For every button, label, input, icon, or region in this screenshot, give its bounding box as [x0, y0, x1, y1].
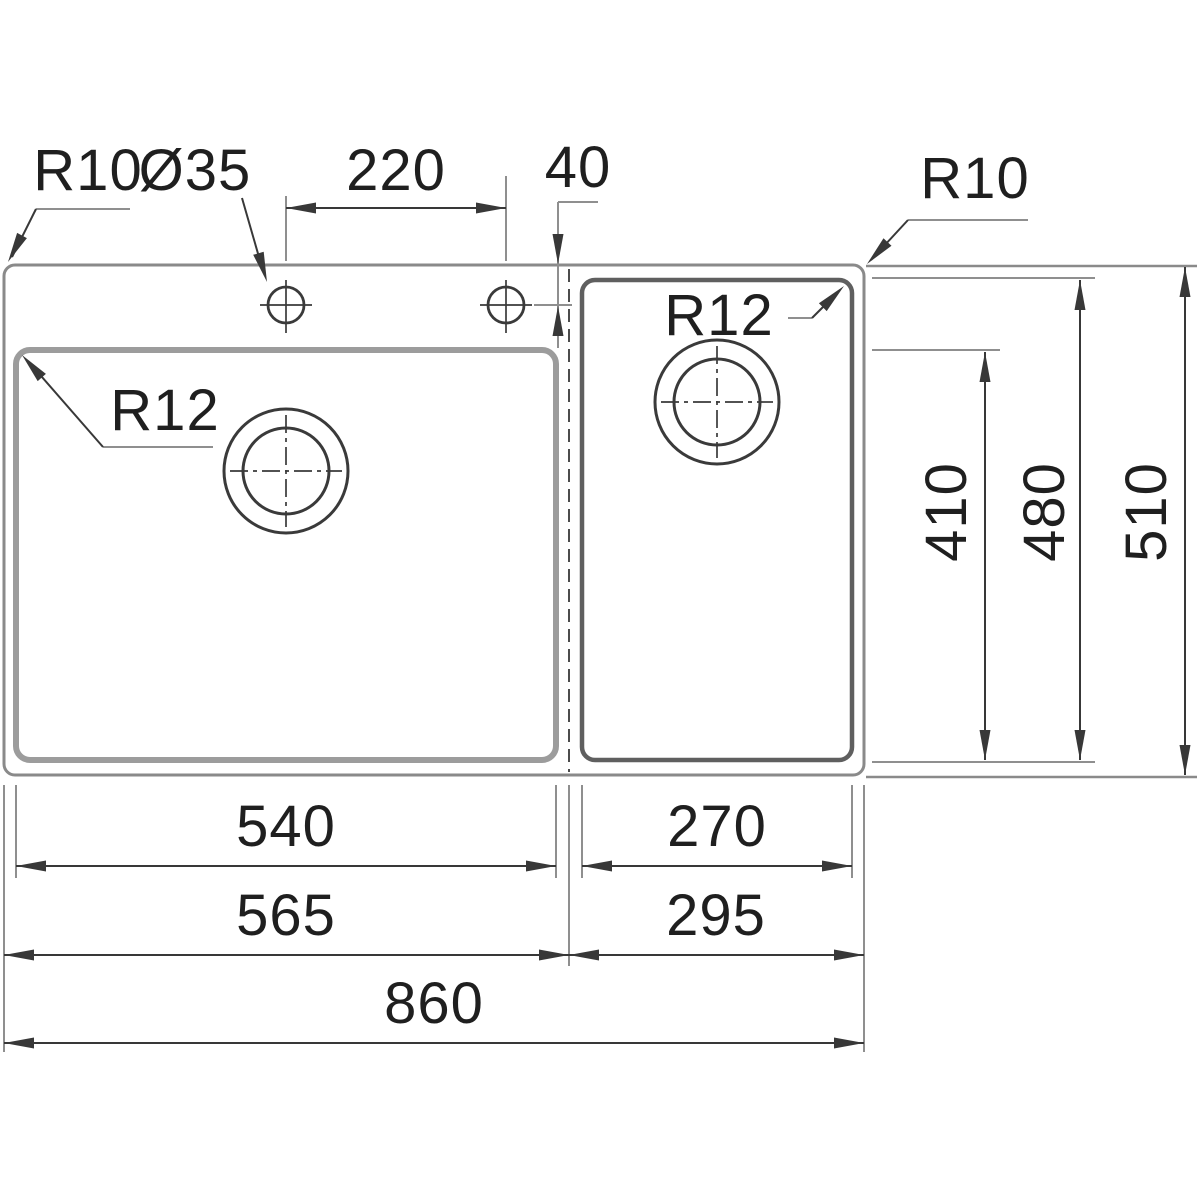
dim-text-565: 565 [236, 883, 336, 948]
arrowhead-510-top [1180, 267, 1191, 297]
main-bowl-outline [16, 350, 556, 760]
arrowhead-270-right [822, 861, 852, 872]
arrowhead-40-down [553, 234, 564, 264]
callout-r12-small-bowl: R12 [664, 283, 844, 348]
dim-text-510: 510 [1114, 462, 1179, 562]
dimension-tap-spacing-220: 220 [286, 138, 506, 261]
callout-tap-diameter-o35: Ø35 [139, 138, 267, 282]
callout-r10-top-right: R10 [867, 146, 1030, 264]
arrowhead-540-right [526, 861, 556, 872]
dimension-tap-offset-40: 40 [534, 135, 611, 348]
dim-text-860: 860 [384, 971, 484, 1036]
dimension-depth-410: 410 [872, 350, 1000, 760]
arrowhead-860-left [4, 1038, 34, 1049]
dim-text-40: 40 [545, 135, 612, 200]
arrowhead-r10-left [8, 233, 27, 262]
dim-text-220: 220 [346, 138, 446, 203]
arrowhead-295-right [834, 950, 864, 961]
arrowhead-o35 [253, 252, 267, 282]
arrowhead-480-top [1075, 280, 1086, 310]
callout-text-r10-right: R10 [920, 146, 1029, 211]
arrowhead-860-right [834, 1038, 864, 1049]
arrowhead-270-left [582, 861, 612, 872]
dimension-width-540: 540 [16, 794, 556, 872]
dimension-width-270: 270 [582, 794, 852, 872]
arrowhead-410-bottom [980, 730, 991, 760]
arrowhead-565-right [539, 950, 569, 961]
arrowhead-480-bottom [1075, 730, 1086, 760]
dimension-width-565: 565 [4, 883, 569, 961]
dim-text-540: 540 [236, 794, 336, 859]
technical-drawing-page: 220 40 R10 Ø35 R10 R12 R12 [0, 0, 1200, 1200]
callout-text-o35: Ø35 [139, 138, 252, 203]
callout-text-r10-left: R10 [33, 138, 142, 203]
arrowhead-410-top [980, 352, 991, 382]
dim-text-410: 410 [914, 462, 979, 562]
callout-r12-main-bowl: R12 [22, 355, 220, 447]
callout-text-r12-left: R12 [110, 378, 219, 443]
dim-text-480: 480 [1012, 462, 1077, 562]
arrowhead-510-bottom [1180, 745, 1191, 775]
arrowhead-220-right [476, 203, 506, 214]
tap-hole-right [480, 280, 532, 333]
arrowhead-295-left [569, 950, 599, 961]
callout-r10-top-left: R10 [8, 138, 143, 262]
dimension-width-295: 295 [569, 883, 864, 961]
dim-text-295: 295 [666, 883, 766, 948]
arrowhead-540-left [16, 861, 46, 872]
callout-text-r12-right: R12 [664, 283, 773, 348]
arrowhead-220-left [286, 203, 316, 214]
tap-holes [260, 280, 532, 333]
tap-hole-left [260, 280, 312, 333]
arrowhead-40-up [553, 306, 564, 336]
sink-dimension-drawing: 220 40 R10 Ø35 R10 R12 R12 [0, 0, 1200, 1200]
arrowhead-565-left [4, 950, 34, 961]
drain-main-bowl [224, 409, 348, 533]
dimension-width-860: 860 [4, 971, 864, 1049]
drain-small-bowl [655, 340, 779, 464]
drains [224, 340, 779, 533]
dim-text-270: 270 [667, 794, 767, 859]
